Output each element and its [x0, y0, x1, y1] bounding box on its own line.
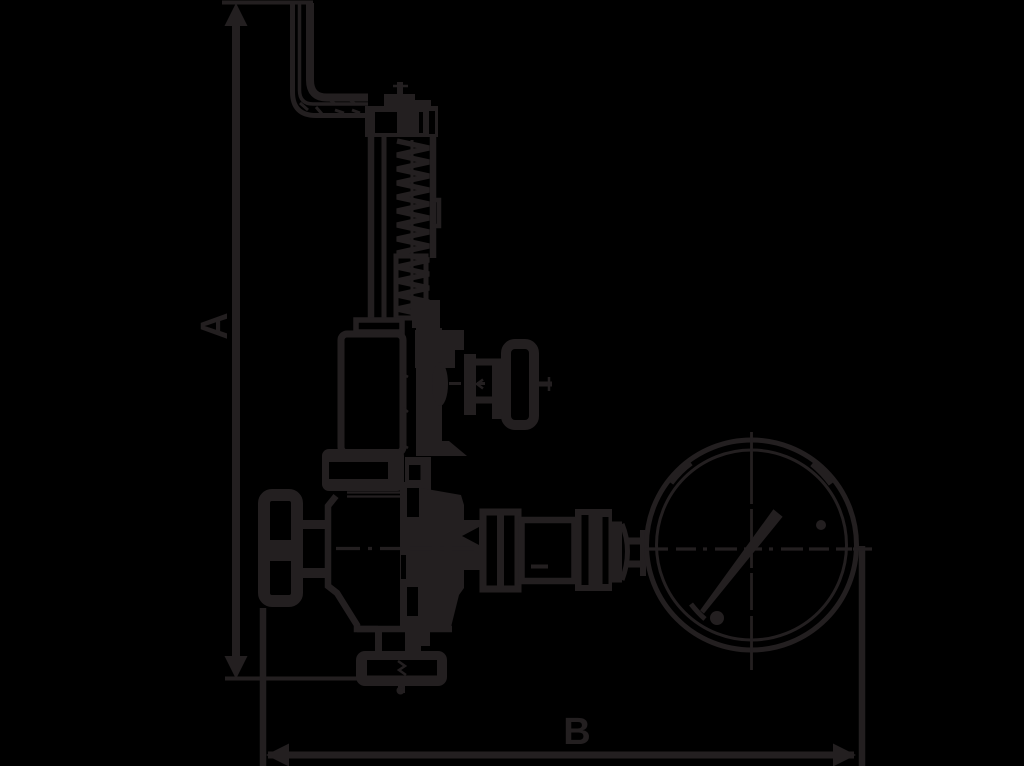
svg-text:A: A [194, 312, 236, 339]
svg-text:B: B [563, 711, 590, 753]
